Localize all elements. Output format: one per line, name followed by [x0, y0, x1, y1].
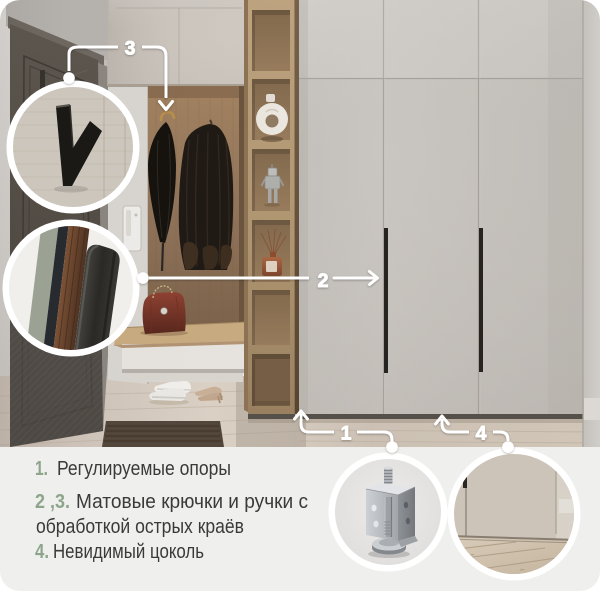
svg-text:4: 4 [476, 423, 487, 445]
svg-text:1.: 1. [35, 457, 48, 480]
svg-text:Регулируемые опоры: Регулируемые опоры [57, 457, 231, 480]
svg-text:2 ,3.: 2 ,3. [35, 490, 70, 513]
svg-text:Невидимый цоколь: Невидимый цоколь [53, 540, 204, 563]
svg-text:3: 3 [125, 38, 136, 60]
svg-text:1: 1 [341, 423, 352, 445]
svg-text:2: 2 [318, 270, 329, 292]
svg-text:обработкой острых краёв: обработкой острых краёв [36, 515, 244, 538]
svg-text:4.: 4. [35, 540, 49, 563]
svg-text:Матовые крючки и ручки с: Матовые крючки и ручки с [76, 490, 308, 513]
